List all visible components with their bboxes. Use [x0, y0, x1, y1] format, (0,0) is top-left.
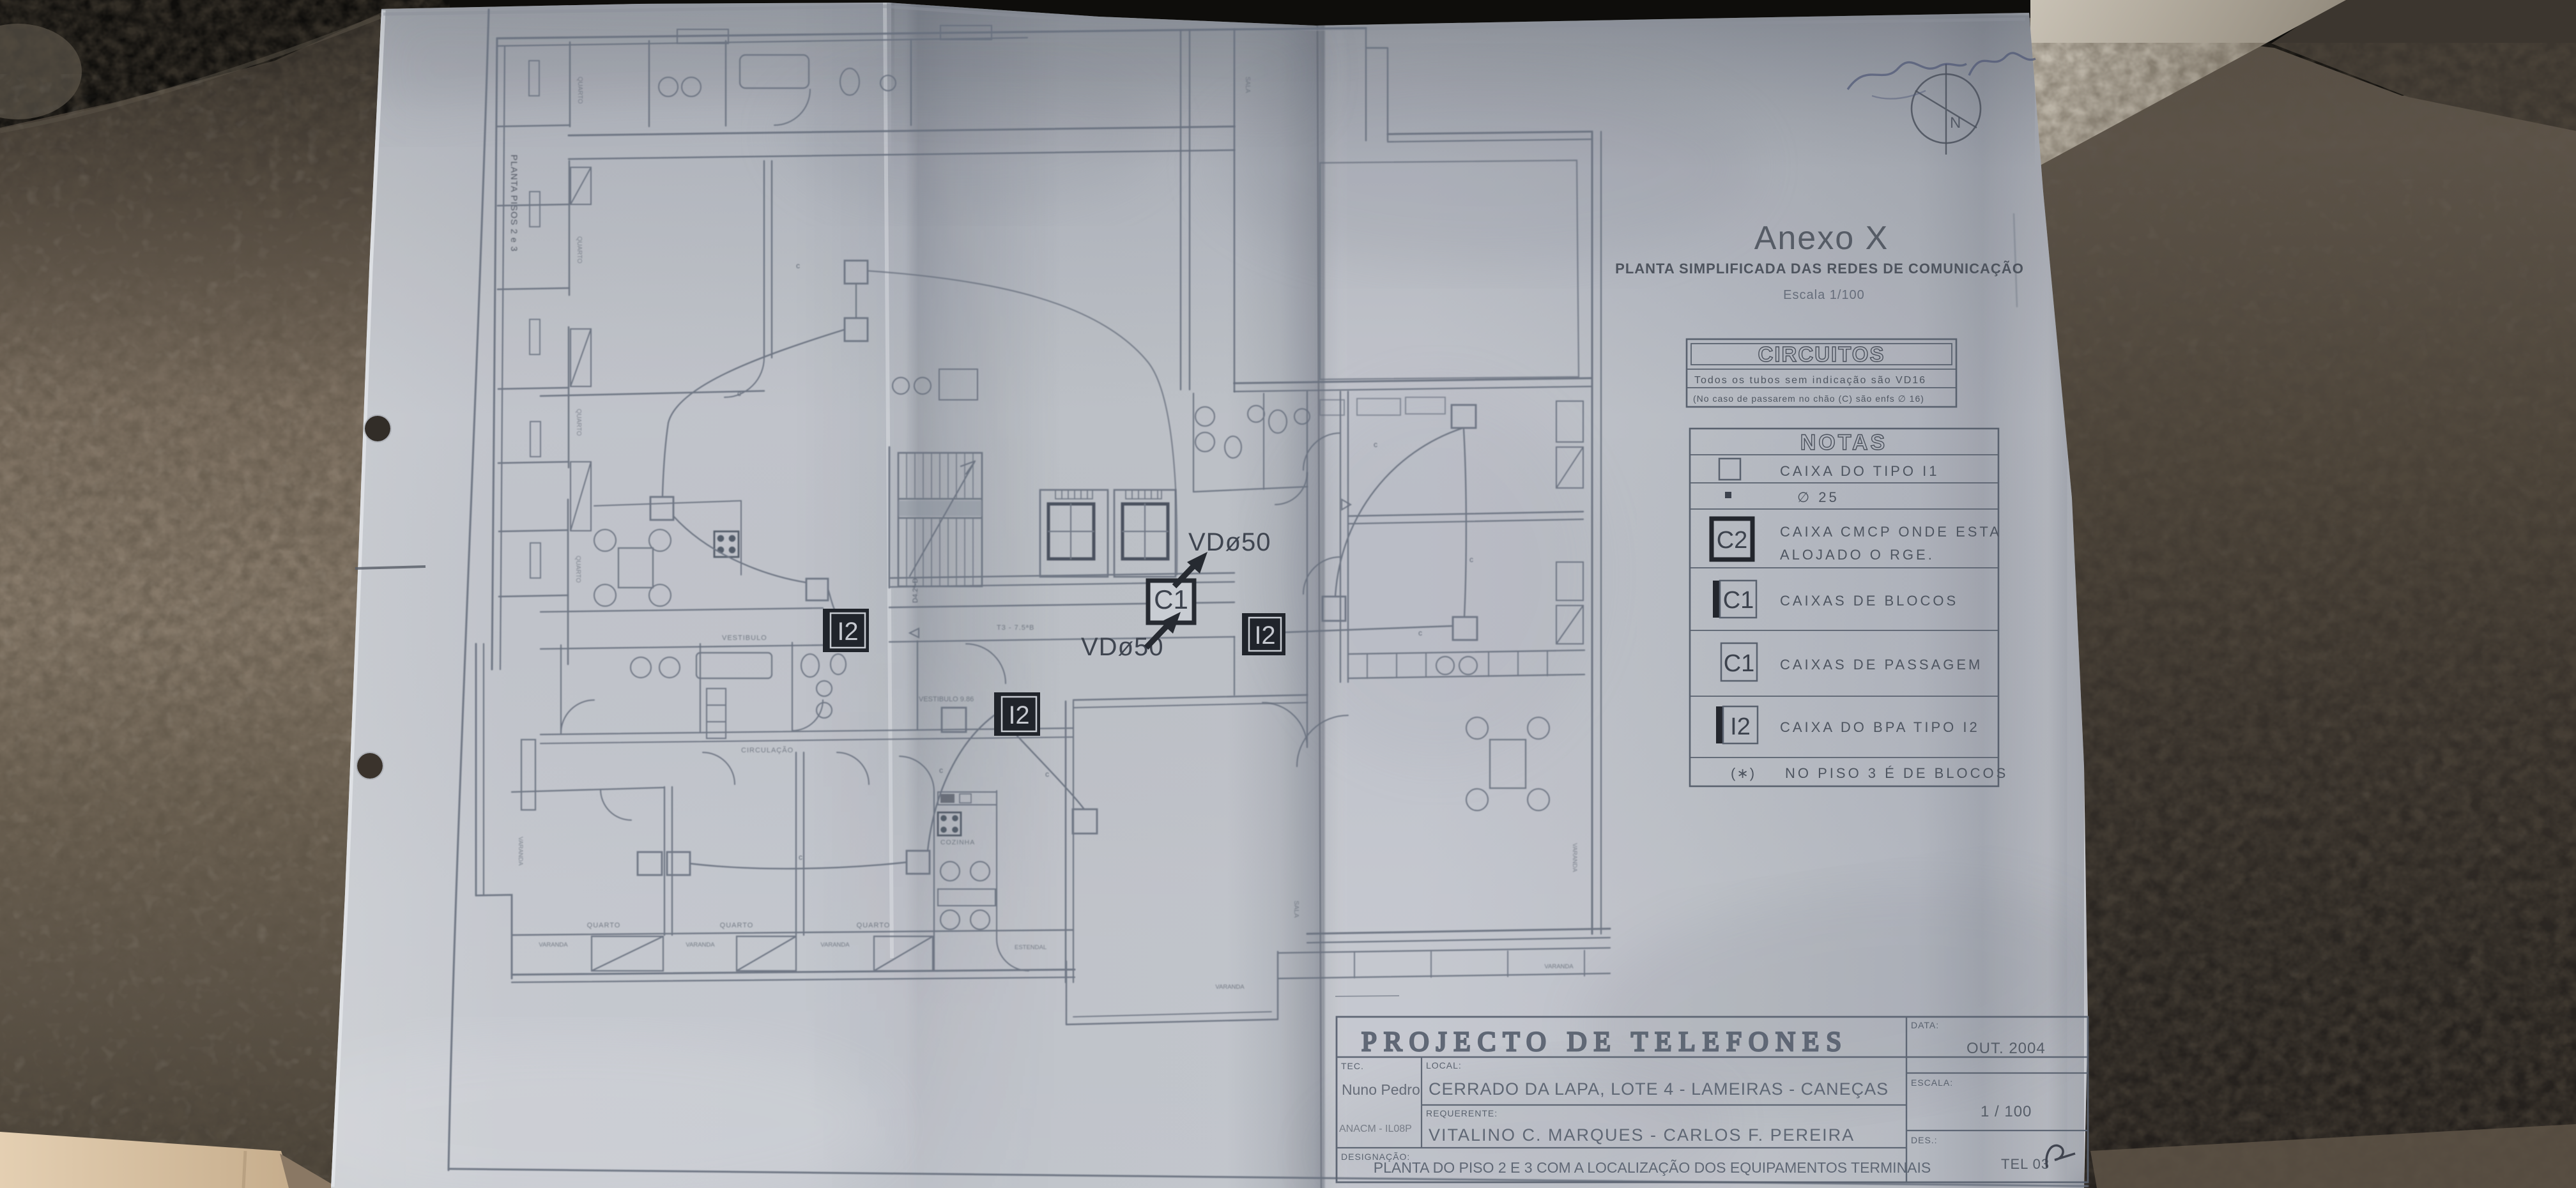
svg-text:Todos os tubos sem indicação s: Todos os tubos sem indicação são VD16 — [1694, 375, 1926, 386]
svg-text:c: c — [1469, 555, 1473, 564]
svg-text:CIRCUITOS: CIRCUITOS — [1758, 342, 1885, 366]
svg-text:VARANDA: VARANDA — [517, 837, 524, 866]
svg-text:I2: I2 — [1254, 621, 1275, 650]
svg-text:QUARTO: QUARTO — [575, 409, 582, 436]
svg-text:I2: I2 — [1008, 701, 1029, 729]
svg-text:C1: C1 — [1723, 587, 1754, 614]
svg-text:VDø50: VDø50 — [1081, 633, 1164, 661]
svg-text:NO PISO 3 É DE BLOCOS: NO PISO 3 É DE BLOCOS — [1785, 765, 2008, 781]
svg-text:CAIXAS DE PASSAGEM: CAIXAS DE PASSAGEM — [1780, 657, 1982, 673]
svg-text:c: c — [1045, 770, 1049, 779]
svg-text:ALOJADO O RGE.: ALOJADO O RGE. — [1780, 547, 1935, 563]
svg-text:VARANDA: VARANDA — [539, 941, 568, 948]
svg-text:TEL 03: TEL 03 — [2001, 1156, 2050, 1172]
svg-text:Nuno Pedro: Nuno Pedro — [1342, 1081, 1420, 1098]
svg-text:VDø50: VDø50 — [1188, 528, 1271, 556]
svg-text:TEC.: TEC. — [1341, 1061, 1364, 1071]
svg-text:Anexo X: Anexo X — [1754, 220, 1889, 257]
svg-text:c: c — [1374, 440, 1377, 449]
svg-text:I2: I2 — [837, 618, 858, 646]
svg-text:SALA: SALA — [1292, 901, 1300, 918]
svg-text:T3 - 7.5ªB: T3 - 7.5ªB — [997, 624, 1034, 632]
svg-text:I2: I2 — [1730, 713, 1751, 740]
svg-text:COZINHA: COZINHA — [940, 839, 975, 846]
svg-text:∅ 25: ∅ 25 — [1797, 489, 1839, 505]
svg-text:VARANDA: VARANDA — [1571, 843, 1578, 872]
svg-text:c: c — [796, 261, 800, 270]
svg-text:QUARTO: QUARTO — [587, 922, 621, 929]
svg-text:c: c — [1418, 628, 1422, 637]
svg-text:DES.:: DES.: — [1911, 1135, 1938, 1145]
svg-text:Escala 1/100: Escala 1/100 — [1783, 288, 1865, 302]
svg-text:N: N — [1950, 114, 1961, 132]
svg-text:QUARTO: QUARTO — [574, 556, 581, 583]
svg-text:QUARTO: QUARTO — [576, 77, 583, 104]
svg-text:VARANDA: VARANDA — [686, 941, 715, 948]
svg-text:QUARTO: QUARTO — [857, 922, 891, 929]
svg-text:VARANDA: VARANDA — [820, 941, 850, 948]
svg-text:SALA: SALA — [1244, 77, 1251, 93]
svg-text:QUARTO: QUARTO — [720, 922, 754, 929]
svg-text:NOTAS: NOTAS — [1800, 430, 1887, 455]
svg-text:(No caso de passarem no chão (: (No caso de passarem no chão (C) são enf… — [1693, 393, 1924, 404]
svg-text:CERRADO DA LAPA, LOTE 4 - LA: CERRADO DA LAPA, LOTE 4 - LAMEIRAS - CAN… — [1429, 1079, 1889, 1099]
svg-text:OUT. 2004: OUT. 2004 — [1966, 1040, 2046, 1057]
svg-text:PLANTA DO PISO 2 E 3 COM A LOC: PLANTA DO PISO 2 E 3 COM A LOCALIZAÇÃO D… — [1374, 1159, 1931, 1176]
svg-text:(∗): (∗) — [1731, 765, 1756, 781]
svg-text:D4.2ª-D: D4.2ª-D — [912, 578, 919, 603]
svg-text:1 / 100: 1 / 100 — [1981, 1103, 2032, 1120]
svg-text:PLANTA PISOS 2 e 3: PLANTA PISOS 2 e 3 — [509, 155, 519, 252]
svg-text:c: c — [799, 853, 802, 862]
svg-text:c: c — [737, 389, 741, 398]
svg-text:CIRCULAÇÃO: CIRCULAÇÃO — [741, 746, 793, 754]
svg-text:CAIXAS DE BLOCOS: CAIXAS DE BLOCOS — [1780, 593, 1958, 609]
svg-text:VESTIBULO: VESTIBULO — [722, 634, 767, 642]
svg-text:PLANTA SIMPLIFICADA DAS REDES: PLANTA SIMPLIFICADA DAS REDES DE COMUNIC… — [1615, 261, 2024, 277]
svg-text:C1: C1 — [1154, 584, 1188, 614]
svg-text:c: c — [939, 766, 943, 775]
svg-text:PROJECTO DE TELEFONES: PROJECTO DE TELEFONES — [1361, 1027, 1848, 1057]
svg-text:REQUERENTE:: REQUERENTE: — [1426, 1108, 1498, 1118]
svg-text:DATA:: DATA: — [1911, 1020, 1939, 1030]
svg-text:ANACM - IL08P: ANACM - IL08P — [1339, 1123, 1412, 1134]
svg-text:C1: C1 — [1724, 650, 1755, 677]
svg-text:ESTENDAL: ESTENDAL — [1015, 944, 1046, 951]
svg-text:LOCAL:: LOCAL: — [1426, 1060, 1462, 1070]
svg-text:VITALINO C. MARQUES - CARLOS: VITALINO C. MARQUES - CARLOS F. PEREIRA — [1429, 1125, 1855, 1145]
svg-text:C2: C2 — [1717, 527, 1748, 554]
svg-text:VARANDA: VARANDA — [1215, 984, 1245, 991]
svg-text:VESTIBULO 9.86: VESTIBULO 9.86 — [919, 696, 974, 703]
svg-text:CAIXA DO BPA TIPO I2: CAIXA DO BPA TIPO I2 — [1780, 719, 1980, 735]
svg-text:ESCALA:: ESCALA: — [1911, 1078, 1953, 1088]
svg-text:CAIXA CMCP ONDE ESTA: CAIXA CMCP ONDE ESTA — [1780, 524, 2002, 540]
svg-text:QUARTO: QUARTO — [576, 236, 583, 264]
svg-text:CAIXA DO TIPO I1: CAIXA DO TIPO I1 — [1780, 463, 1939, 479]
svg-text:VARANDA: VARANDA — [1544, 963, 1574, 970]
